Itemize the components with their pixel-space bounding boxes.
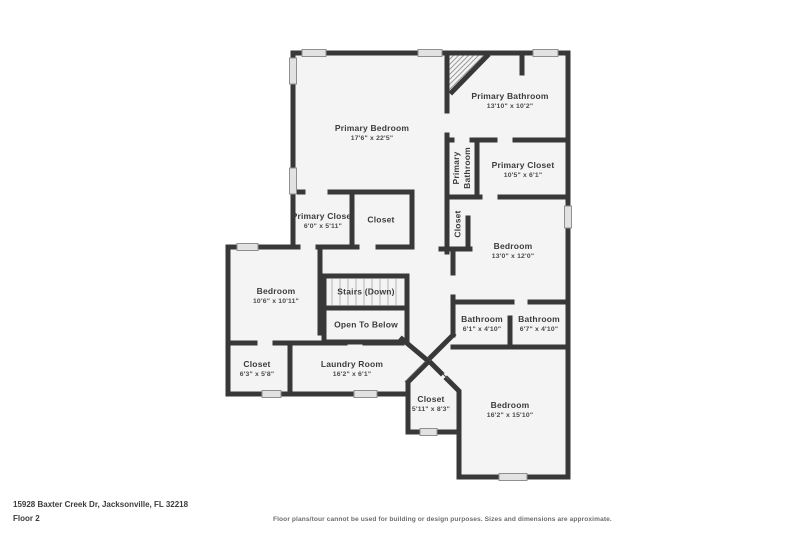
floor-label: Floor 2: [13, 514, 40, 523]
property-address: 15928 Baxter Creek Dr, Jacksonville, FL …: [13, 500, 188, 509]
floor-plan-page: Primary Bedroom 17'6" x 22'5" Primary Ba…: [0, 0, 800, 533]
floor-plan-drawing: [0, 0, 800, 533]
disclaimer-text: Floor plans/tour cannot be used for buil…: [273, 516, 612, 523]
floor-footprint: [228, 53, 568, 477]
